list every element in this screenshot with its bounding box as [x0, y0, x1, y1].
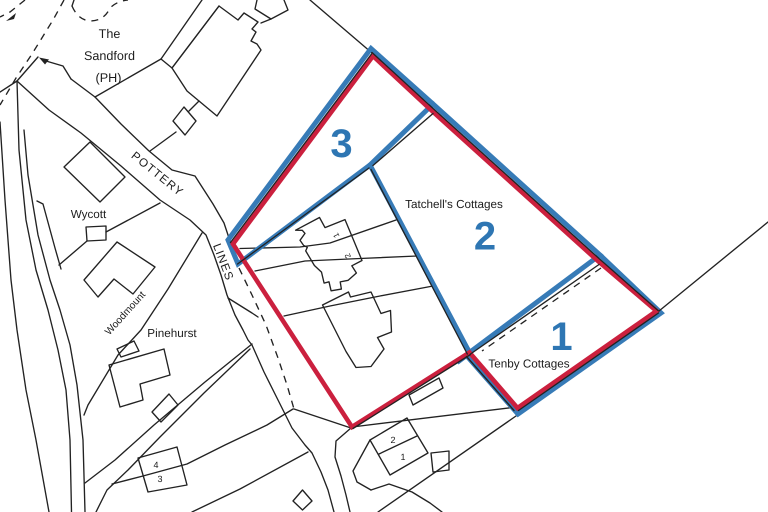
svg-text:(PH): (PH) — [96, 71, 122, 85]
svg-text:Tatchell's Cottages: Tatchell's Cottages — [405, 198, 503, 211]
svg-text:2: 2 — [474, 215, 496, 259]
svg-text:2: 2 — [390, 435, 395, 445]
svg-text:Pinehurst: Pinehurst — [147, 327, 197, 340]
svg-text:1: 1 — [331, 231, 341, 239]
svg-text:Wycott: Wycott — [71, 208, 107, 221]
svg-text:Woodmount: Woodmount — [103, 290, 148, 338]
svg-text:Tenby Cottages: Tenby Cottages — [488, 358, 569, 371]
svg-text:3: 3 — [157, 474, 162, 484]
svg-text:4: 4 — [153, 460, 158, 470]
svg-text:1: 1 — [400, 452, 405, 462]
svg-text:Sandford: Sandford — [84, 49, 135, 63]
svg-text:3: 3 — [330, 122, 352, 166]
svg-text:The: The — [99, 27, 121, 41]
svg-text:1: 1 — [550, 315, 572, 359]
svg-text:POTTERY: POTTERY — [129, 149, 186, 199]
